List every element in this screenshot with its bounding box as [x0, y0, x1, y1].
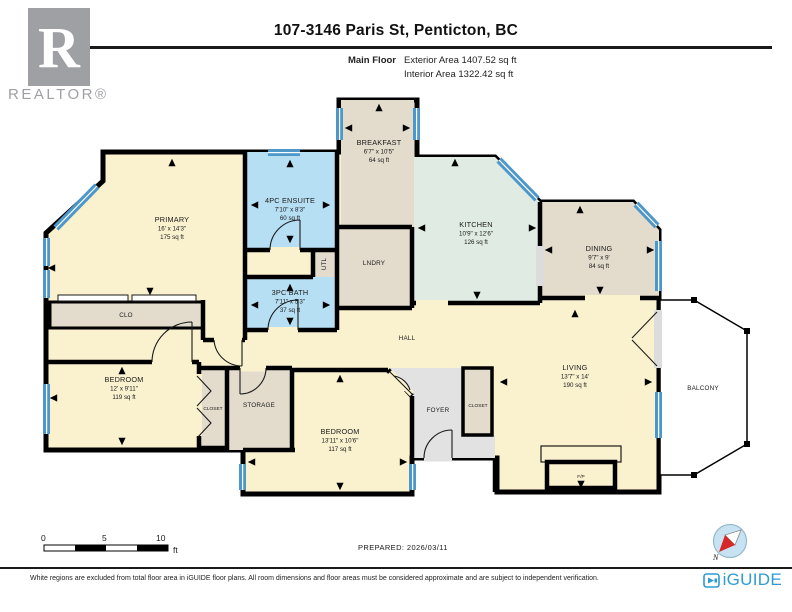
label-bedroom1-dims: 12' x 9'11"	[110, 386, 138, 393]
label-foyer: FOYER	[427, 407, 450, 414]
iguide-logo-text: iGUIDE	[723, 570, 782, 590]
room-lndry	[337, 227, 412, 308]
label-ensuite-area: 60 sq ft	[280, 215, 301, 222]
scale-zero: 0	[41, 533, 46, 543]
label-dining-dims: 9'7" x 9'	[588, 255, 609, 262]
label-closet-bedroom: CLOSET	[203, 406, 222, 412]
scale-ten: 10	[156, 533, 166, 543]
iguide-logo: iGUIDE	[703, 570, 782, 590]
label-living-area: 190 sq ft	[563, 382, 587, 389]
label-primary-area: 175 sq ft	[160, 234, 184, 241]
compass-north-label: N	[712, 553, 719, 562]
label-fireplace: F/P	[577, 474, 584, 480]
compass-icon: N	[712, 525, 747, 563]
floor-plan-page: 107-3146 Paris St, Penticton, BC Main Fl…	[0, 0, 792, 612]
label-closet-foyer: CLOSET	[468, 403, 487, 409]
floor-plan-svg: PRIMARY 16' x 14'3" 175 sq ft 4PC ENSUIT…	[0, 0, 792, 612]
scale-five: 5	[102, 533, 107, 543]
scale-bar: 0 5 10 ft	[41, 533, 178, 555]
label-bath: 3PC BATH	[272, 288, 309, 297]
realtor-r: R	[38, 14, 80, 81]
disclaimer-text: White regions are excluded from total fl…	[30, 575, 599, 582]
label-primary: PRIMARY	[155, 215, 190, 224]
label-primary-dims: 16' x 14'3"	[158, 226, 186, 233]
footer-rule	[0, 567, 792, 569]
label-lndry: LNDRY	[363, 260, 386, 267]
room-storage	[228, 368, 292, 450]
label-ensuite: 4PC ENSUITE	[265, 196, 315, 205]
label-clo: CLO	[119, 312, 133, 319]
label-breakfast-area: 64 sq ft	[369, 157, 390, 164]
label-ensuite-dims: 7'10" x 8'3"	[275, 207, 306, 214]
prepared-date: PREPARED: 2026/03/11	[358, 543, 448, 552]
label-living: LIVING	[562, 363, 587, 372]
label-balcony: BALCONY	[687, 385, 719, 392]
label-storage: STORAGE	[243, 402, 275, 409]
label-living-dims: 13'7" x 14'	[561, 374, 589, 381]
label-bedroom2-area: 117 sq ft	[328, 446, 352, 453]
label-kitchen: KITCHEN	[459, 220, 492, 229]
label-bedroom2: BEDROOM	[320, 427, 359, 436]
label-bedroom1-area: 119 sq ft	[112, 394, 136, 401]
label-bedroom1: BEDROOM	[104, 375, 143, 384]
label-bath-dims: 7'11" x 5'3"	[275, 299, 305, 306]
label-kitchen-area: 126 sq ft	[464, 239, 488, 246]
clo-bifold-doors	[58, 295, 196, 301]
room-closet-foyer	[463, 368, 492, 435]
label-breakfast: BREAKFAST	[357, 138, 402, 147]
label-dining-area: 84 sq ft	[589, 263, 610, 270]
label-breakfast-dims: 6'7" x 10'5"	[364, 149, 395, 156]
label-bedroom2-dims: 13'11" x 10'6"	[322, 438, 359, 445]
label-bath-area: 37 sq ft	[280, 307, 301, 314]
realtor-logo-icon: R	[28, 8, 90, 86]
scale-unit: ft	[173, 545, 178, 555]
iguide-logo-icon	[703, 573, 720, 588]
label-kitchen-dims: 10'9" x 12'6"	[459, 231, 493, 238]
label-utl: UTL	[321, 257, 328, 270]
label-hall: HALL	[399, 335, 416, 342]
label-dining: DINING	[586, 244, 613, 253]
